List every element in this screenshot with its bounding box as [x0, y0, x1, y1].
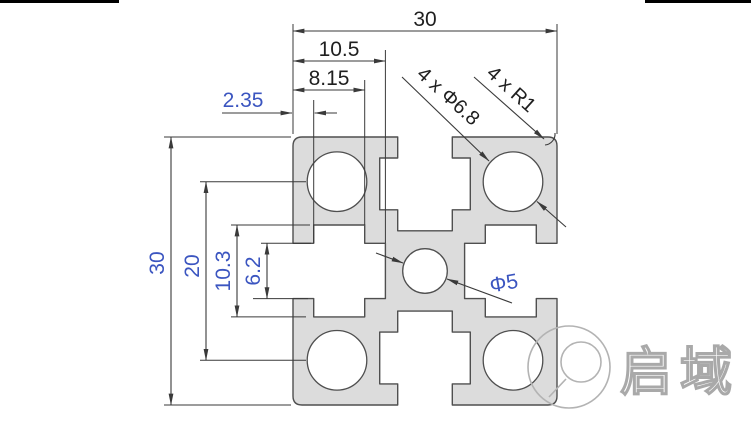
dim-text-overall-height: 30	[146, 251, 169, 274]
label-corner-holes: 4 x Φ6.8	[412, 63, 483, 130]
dim-text-hole-spacing: 20	[181, 254, 204, 277]
dim-text-slot-lip: 2.35	[223, 89, 264, 112]
dim-text-overall-width: 30	[413, 8, 436, 31]
corner-hole-top-left	[307, 152, 367, 212]
dim-text-slot-depth-step: 8.15	[309, 67, 350, 90]
profile-drawing-svg: 30 10.5 8.15 2.35 30 20 10.3 6.2 4 x Φ6.…	[0, 0, 751, 428]
watermark: 启域	[528, 326, 740, 408]
corner-hole-bottom-left	[307, 331, 367, 391]
extrusion-profile-section	[293, 137, 557, 405]
dim-text-opening-width: 6.2	[242, 256, 265, 285]
corner-hole-top-right	[483, 152, 543, 212]
watermark-logo-inner-circle	[561, 342, 601, 382]
dim-text-slot-depth-total: 10.5	[319, 38, 360, 61]
dim-text-cavity-width: 10.3	[212, 251, 235, 292]
label-center-hole: Φ5	[488, 270, 520, 298]
watermark-brand-text: 启域	[620, 344, 740, 402]
label-corner-radius: 4 x R1	[482, 62, 540, 117]
technical-drawing-canvas: 30 10.5 8.15 2.35 30 20 10.3 6.2 4 x Φ6.…	[0, 0, 751, 428]
corner-hole-bottom-right	[483, 331, 543, 391]
center-hole	[403, 249, 448, 294]
